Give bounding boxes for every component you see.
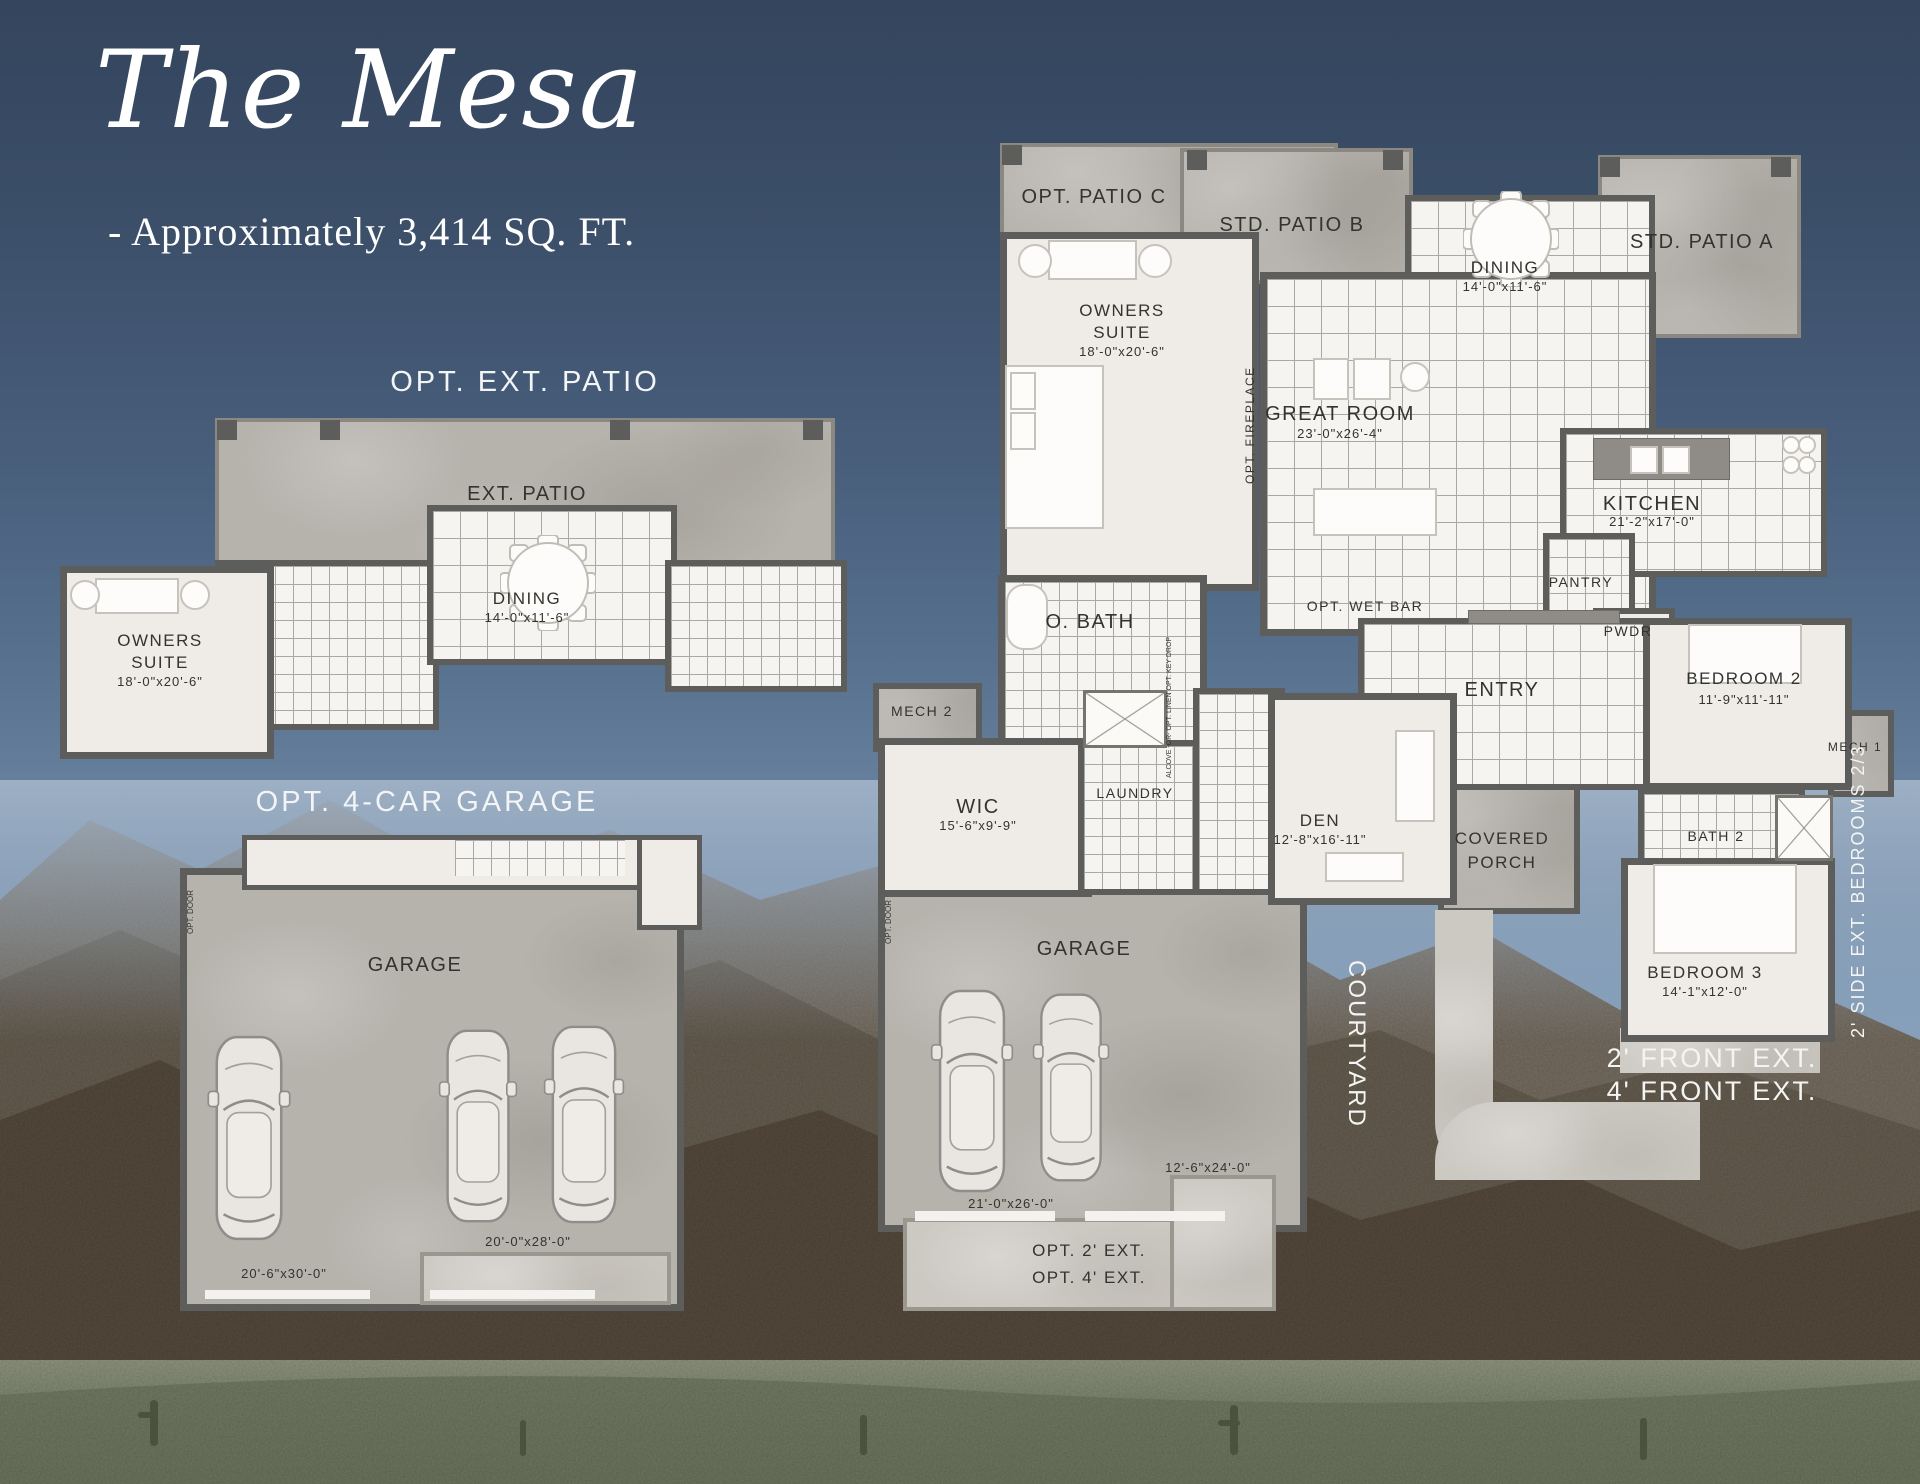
den-label: DEN bbox=[1240, 810, 1400, 831]
std-patio-b-label: STD. PATIO B bbox=[1192, 213, 1392, 238]
left-dining-dims: 14'-0"x11'-6" bbox=[447, 610, 607, 626]
wet-bar-counter bbox=[1468, 610, 1620, 624]
main-dining-dims: 14'-0"x11'-6" bbox=[1425, 279, 1585, 295]
side-ext-label: 2' SIDE EXT. BEDROOMS 2/3 bbox=[1848, 788, 1869, 1038]
side-table bbox=[1018, 244, 1052, 278]
bedroom2-label: BEDROOM 2 bbox=[1644, 668, 1844, 689]
patio-column bbox=[1187, 150, 1207, 170]
garage-door bbox=[1085, 1211, 1225, 1221]
cooktop-burner bbox=[1798, 456, 1816, 474]
shower bbox=[1083, 690, 1167, 748]
left-hall-tiles-right bbox=[665, 560, 847, 692]
patio-column bbox=[1383, 150, 1403, 170]
opt-patio-c-label: OPT. PATIO C bbox=[994, 185, 1194, 210]
garage-ext-dims: 12'-6"x24'-0" bbox=[1118, 1160, 1298, 1176]
patio-column bbox=[803, 420, 823, 440]
o-bath-label: O. BATH bbox=[1010, 610, 1170, 635]
garage-door bbox=[430, 1290, 595, 1299]
left-garage-label: GARAGE bbox=[315, 953, 515, 978]
island-sink bbox=[1662, 446, 1690, 474]
side-table bbox=[70, 580, 100, 610]
great-room-dims: 23'-0"x26'-4" bbox=[1240, 426, 1440, 442]
floorplan-flyer: The Mesa - Approximately 3,414 SQ. FT. O… bbox=[0, 0, 1920, 1484]
courtyard-walkway-horizontal bbox=[1435, 1102, 1700, 1180]
left-garage-dim-b: 20'-0"x28'-0" bbox=[428, 1234, 628, 1250]
opt-ext-patio-heading: OPT. EXT. PATIO bbox=[315, 366, 735, 399]
car-suv bbox=[203, 1032, 295, 1244]
bed bbox=[1653, 864, 1797, 954]
opt-ext-label2: OPT. 4' EXT. bbox=[989, 1267, 1189, 1288]
armchair bbox=[1313, 358, 1349, 400]
laundry-label: LAUNDRY bbox=[1070, 785, 1200, 803]
main-opt-door-note: OPT. DOOR bbox=[884, 900, 894, 944]
patio-column bbox=[1002, 145, 1022, 165]
plan-subtitle: - Approximately 3,414 SQ. FT. bbox=[108, 208, 635, 255]
left-owners-dims: 18'-0"x20'-6" bbox=[65, 674, 255, 690]
island-sink bbox=[1630, 446, 1658, 474]
pwdr-label: PWDR bbox=[1568, 623, 1688, 641]
great-room-label: GREAT ROOM bbox=[1240, 402, 1440, 427]
mech2-label: MECH 2 bbox=[862, 703, 982, 721]
main-garage-label: GARAGE bbox=[984, 937, 1184, 962]
laundry-room bbox=[1078, 740, 1205, 895]
left-dining-label: DINING bbox=[447, 588, 607, 609]
front-ext-label2: 4' FRONT EXT. bbox=[1597, 1076, 1827, 1107]
side-table bbox=[1138, 244, 1172, 278]
opt-fireplace-label: OPT. FIREPLACE bbox=[1243, 365, 1258, 485]
patio-column bbox=[1771, 157, 1791, 177]
entry-label: ENTRY bbox=[1402, 678, 1602, 703]
car-sedan bbox=[438, 1015, 518, 1237]
alcove-note: ALCOVE -OR- OPT. LINEN OPT. KEY DROP bbox=[1166, 688, 1175, 778]
car-sedan bbox=[930, 985, 1014, 1197]
den-dims: 12'-8"x16'-11" bbox=[1240, 832, 1400, 848]
garage-opt-extension bbox=[903, 1218, 1211, 1311]
owners-dims: 18'-0"x20'-6" bbox=[1022, 344, 1222, 360]
patio-column bbox=[610, 420, 630, 440]
cooktop-burner bbox=[1798, 436, 1816, 454]
left-garage-dim-a: 20'-6"x30'-0" bbox=[184, 1266, 384, 1282]
den-desk bbox=[1325, 852, 1404, 882]
patio-column bbox=[1600, 157, 1620, 177]
ext-patio-label: EXT. PATIO bbox=[427, 482, 627, 507]
great-room-sofa bbox=[1313, 488, 1437, 536]
kitchen-dims: 21'-2"x17'-0" bbox=[1552, 514, 1752, 530]
garage-door bbox=[915, 1211, 1055, 1221]
main-garage-dims: 21'-0"x26'-0" bbox=[911, 1196, 1111, 1212]
courtyard-label: COURTYARD bbox=[1342, 960, 1370, 1150]
left-garage-top-tiles bbox=[455, 840, 625, 876]
car-suv bbox=[1032, 990, 1110, 1185]
bath2-label: BATH 2 bbox=[1646, 828, 1786, 846]
owners-label2: SUITE bbox=[1022, 322, 1222, 343]
side-table bbox=[180, 580, 210, 610]
left-owners-label1: OWNERS bbox=[65, 630, 255, 651]
left-owners-label2: SUITE bbox=[65, 652, 255, 673]
porch-label2: PORCH bbox=[1402, 852, 1602, 873]
car-suv bbox=[543, 1022, 625, 1227]
opt-4car-garage-heading: OPT. 4-CAR GARAGE bbox=[227, 786, 627, 819]
owners-label1: OWNERS bbox=[1022, 300, 1222, 321]
plan-title: The Mesa bbox=[95, 28, 645, 153]
porch-label1: COVERED bbox=[1402, 828, 1602, 849]
left-corner-bath bbox=[637, 835, 702, 930]
bedroom2-dims: 11'-9"x11'-11" bbox=[1644, 692, 1844, 708]
front-ext-label1: 2' FRONT EXT. bbox=[1597, 1043, 1827, 1074]
sofa bbox=[1048, 240, 1137, 280]
opt-wet-bar-label: OPT. WET BAR bbox=[1295, 598, 1435, 616]
pillow bbox=[1010, 372, 1036, 410]
opt-ext-label1: OPT. 2' EXT. bbox=[989, 1240, 1189, 1261]
wic-dims: 15'-6"x9'-9" bbox=[878, 818, 1078, 834]
garage-door bbox=[205, 1290, 370, 1299]
left-opt-door-note: OPT. DOOR bbox=[186, 890, 196, 934]
armchair bbox=[1353, 358, 1391, 400]
patio-column bbox=[217, 420, 237, 440]
pantry-label: PANTRY bbox=[1521, 574, 1641, 592]
bedroom3-label: BEDROOM 3 bbox=[1605, 962, 1805, 983]
sofa bbox=[95, 578, 179, 614]
main-dining-label: DINING bbox=[1425, 257, 1585, 278]
std-patio-a-label: STD. PATIO A bbox=[1602, 230, 1802, 255]
round-table bbox=[1400, 362, 1430, 392]
den-sofa bbox=[1395, 730, 1435, 822]
patio-column bbox=[320, 420, 340, 440]
pillow bbox=[1010, 412, 1036, 450]
wic-label: WIC bbox=[878, 795, 1078, 820]
bedroom3-dims: 14'-1"x12'-0" bbox=[1605, 984, 1805, 1000]
